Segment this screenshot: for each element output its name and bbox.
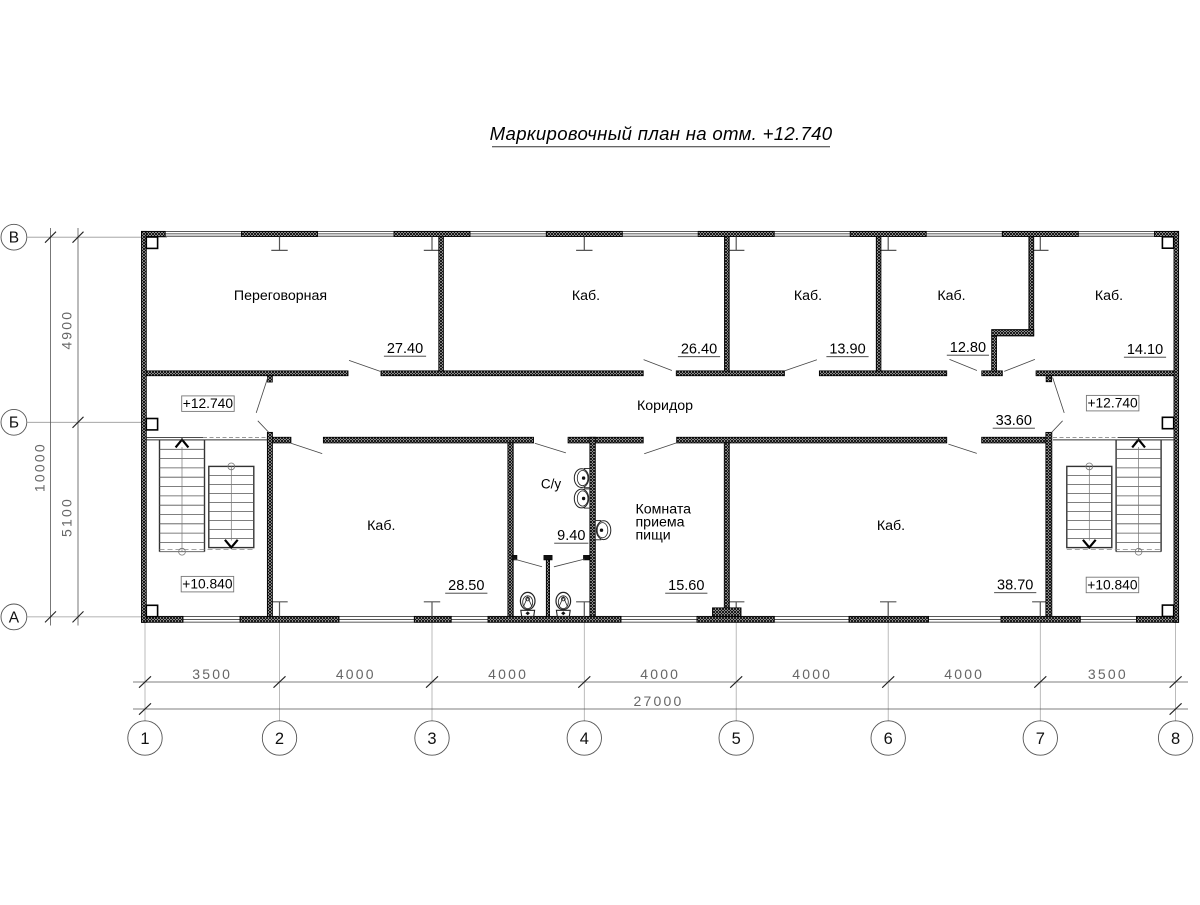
svg-text:10000: 10000 bbox=[32, 442, 48, 492]
svg-text:14.10: 14.10 bbox=[1127, 342, 1163, 358]
svg-text:Каб.: Каб. bbox=[794, 288, 822, 304]
svg-text:9.40: 9.40 bbox=[557, 528, 585, 544]
svg-text:5: 5 bbox=[732, 730, 741, 748]
svg-text:8: 8 bbox=[1171, 730, 1180, 748]
svg-text:12.80: 12.80 bbox=[950, 340, 986, 356]
svg-text:Каб.: Каб. bbox=[367, 518, 395, 534]
svg-text:Каб.: Каб. bbox=[937, 288, 965, 304]
svg-text:5100: 5100 bbox=[59, 497, 75, 537]
svg-text:А: А bbox=[9, 609, 20, 626]
svg-text:28.50: 28.50 bbox=[448, 578, 484, 594]
svg-text:4000: 4000 bbox=[792, 666, 832, 682]
svg-text:26.40: 26.40 bbox=[681, 342, 717, 358]
svg-text:3: 3 bbox=[427, 730, 436, 748]
svg-text:4000: 4000 bbox=[488, 666, 528, 682]
svg-text:2: 2 bbox=[275, 730, 284, 748]
svg-text:1: 1 bbox=[140, 730, 149, 748]
svg-text:3500: 3500 bbox=[192, 666, 232, 682]
svg-text:4000: 4000 bbox=[640, 666, 680, 682]
svg-text:Б: Б bbox=[9, 415, 19, 432]
svg-text:Каб.: Каб. bbox=[1095, 288, 1123, 304]
svg-text:4: 4 bbox=[580, 730, 589, 748]
svg-text:27000: 27000 bbox=[634, 693, 684, 709]
svg-text:13.90: 13.90 bbox=[829, 342, 865, 358]
svg-text:27.40: 27.40 bbox=[387, 341, 423, 357]
svg-text:Каб.: Каб. bbox=[572, 288, 600, 304]
svg-text:7: 7 bbox=[1036, 730, 1045, 748]
svg-text:4000: 4000 bbox=[336, 666, 376, 682]
svg-text:В: В bbox=[9, 230, 19, 247]
svg-text:+12.740: +12.740 bbox=[183, 396, 234, 411]
svg-text:Каб.: Каб. bbox=[877, 518, 905, 534]
svg-text:4900: 4900 bbox=[59, 310, 75, 350]
svg-text:+10.840: +10.840 bbox=[1087, 577, 1138, 592]
svg-text:С/у: С/у bbox=[541, 477, 562, 492]
svg-text:4000: 4000 bbox=[944, 666, 984, 682]
svg-text:38.70: 38.70 bbox=[997, 578, 1033, 594]
svg-text:6: 6 bbox=[884, 730, 893, 748]
svg-text:+12.740: +12.740 bbox=[1087, 396, 1138, 411]
svg-text:15.60: 15.60 bbox=[668, 578, 704, 594]
svg-text:Маркировочный план на отм. +12: Маркировочный план на отм. +12.740 bbox=[490, 123, 833, 144]
svg-text:Коридор: Коридор bbox=[637, 398, 693, 414]
svg-text:+10.840: +10.840 bbox=[182, 577, 233, 592]
svg-text:3500: 3500 bbox=[1088, 666, 1128, 682]
svg-text:33.60: 33.60 bbox=[996, 413, 1032, 429]
svg-text:Переговорная: Переговорная bbox=[234, 288, 327, 304]
svg-text:пищи: пищи bbox=[636, 528, 671, 544]
